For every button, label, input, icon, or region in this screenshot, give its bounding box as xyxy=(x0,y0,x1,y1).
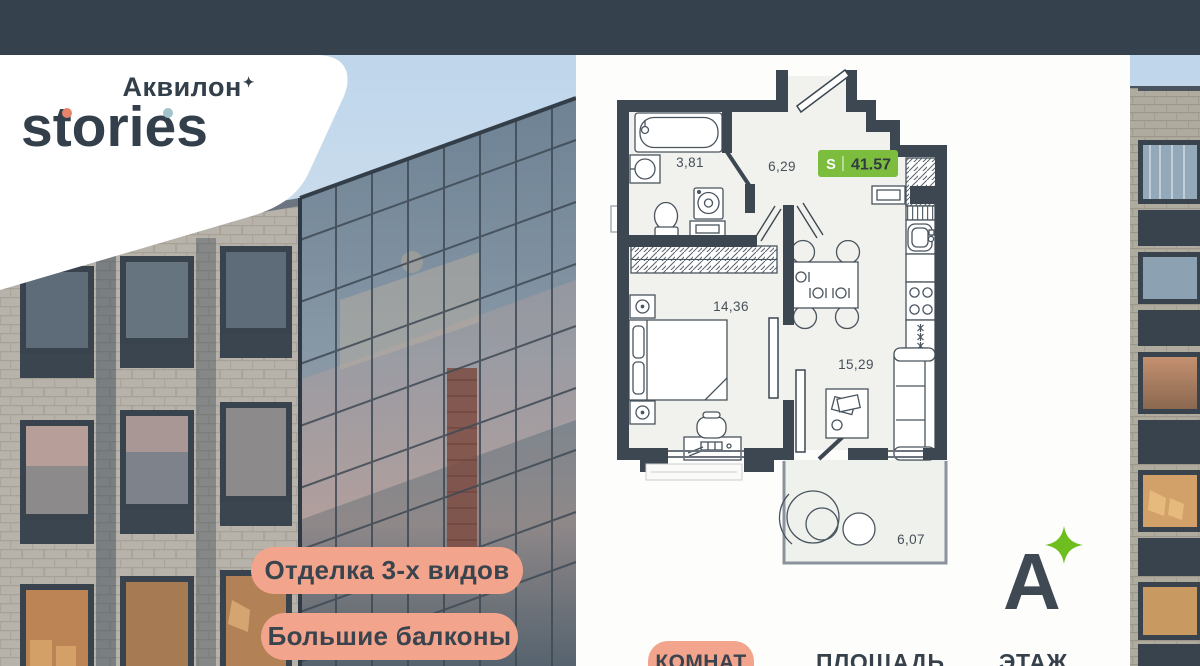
footer-area-label: ПЛОЩАДЬ xyxy=(816,649,945,666)
brand-sparkle-icon: ✦ xyxy=(243,74,255,90)
feature-badge-balconies: Большие балконы xyxy=(261,613,518,660)
footer-floor-label: ЭТАЖ xyxy=(999,649,1068,666)
brand-wordmark: stories xyxy=(21,94,208,160)
sliding-door-living xyxy=(796,370,805,452)
feature-badge-finishing: Отделка 3-х видов xyxy=(251,547,523,594)
sliding-door-bedroom xyxy=(769,318,778,398)
bedroom-area-label: 14,36 xyxy=(713,299,749,314)
logo-dot-teal-icon xyxy=(163,108,173,118)
balcony-area-label: 6,07 xyxy=(897,532,925,547)
developer-logo: А xyxy=(1003,534,1095,620)
logo-dot-orange-icon xyxy=(62,108,72,118)
total-area-badge: S 41.57 xyxy=(818,150,898,177)
facade-windows xyxy=(20,246,292,666)
wardrobe xyxy=(631,246,777,273)
green-sparkle-icon xyxy=(1045,526,1083,564)
hallway-area-label: 6,29 xyxy=(768,159,796,174)
top-band xyxy=(0,0,1200,55)
kitchen-living-area-label: 15,29 xyxy=(838,357,874,372)
bathroom-area-label: 3,81 xyxy=(676,155,704,170)
total-area-value: 41.57 xyxy=(851,157,891,174)
footer-rooms-badge: КОМНАТ xyxy=(648,641,754,666)
total-area-s: S xyxy=(826,157,836,173)
building-photo-right-strip xyxy=(1130,55,1200,666)
listing-card: 3,81 6,29 14,36 15,29 6,07 S 41.57 Аквил… xyxy=(0,0,1200,666)
